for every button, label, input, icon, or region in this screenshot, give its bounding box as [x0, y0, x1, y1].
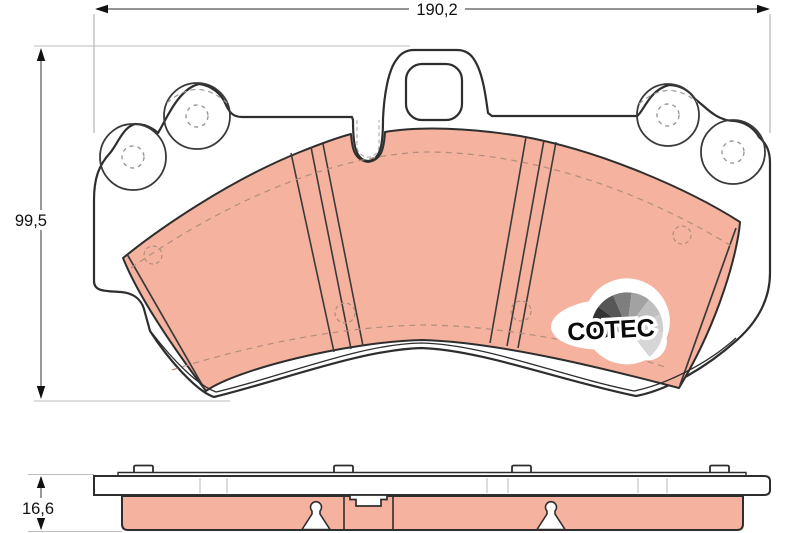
arrow-down-icon: [37, 518, 45, 530]
center-lug: [350, 495, 387, 506]
center-tab-hole: [406, 64, 462, 120]
arrow-up-icon: [37, 48, 45, 61]
arrow-right-icon: [757, 5, 770, 13]
front-view: [94, 50, 770, 397]
arrow-down-icon: [37, 386, 45, 399]
backing-plate-side: [94, 476, 770, 495]
side-view: [94, 466, 770, 531]
notch-hidden-line: [357, 120, 379, 157]
width-label: 190,2: [416, 1, 457, 19]
brake-pad-drawing: 190,2 99,5: [0, 0, 800, 533]
arrow-left-icon: [95, 5, 108, 13]
height-label: 99,5: [15, 212, 47, 230]
friction-material-side: [122, 496, 743, 530]
arrow-up-icon: [37, 476, 45, 488]
logo-text: COTEC: [567, 314, 656, 347]
thickness-label: 16,6: [22, 500, 54, 518]
drawing-canvas: 190,2 99,5: [0, 0, 800, 533]
